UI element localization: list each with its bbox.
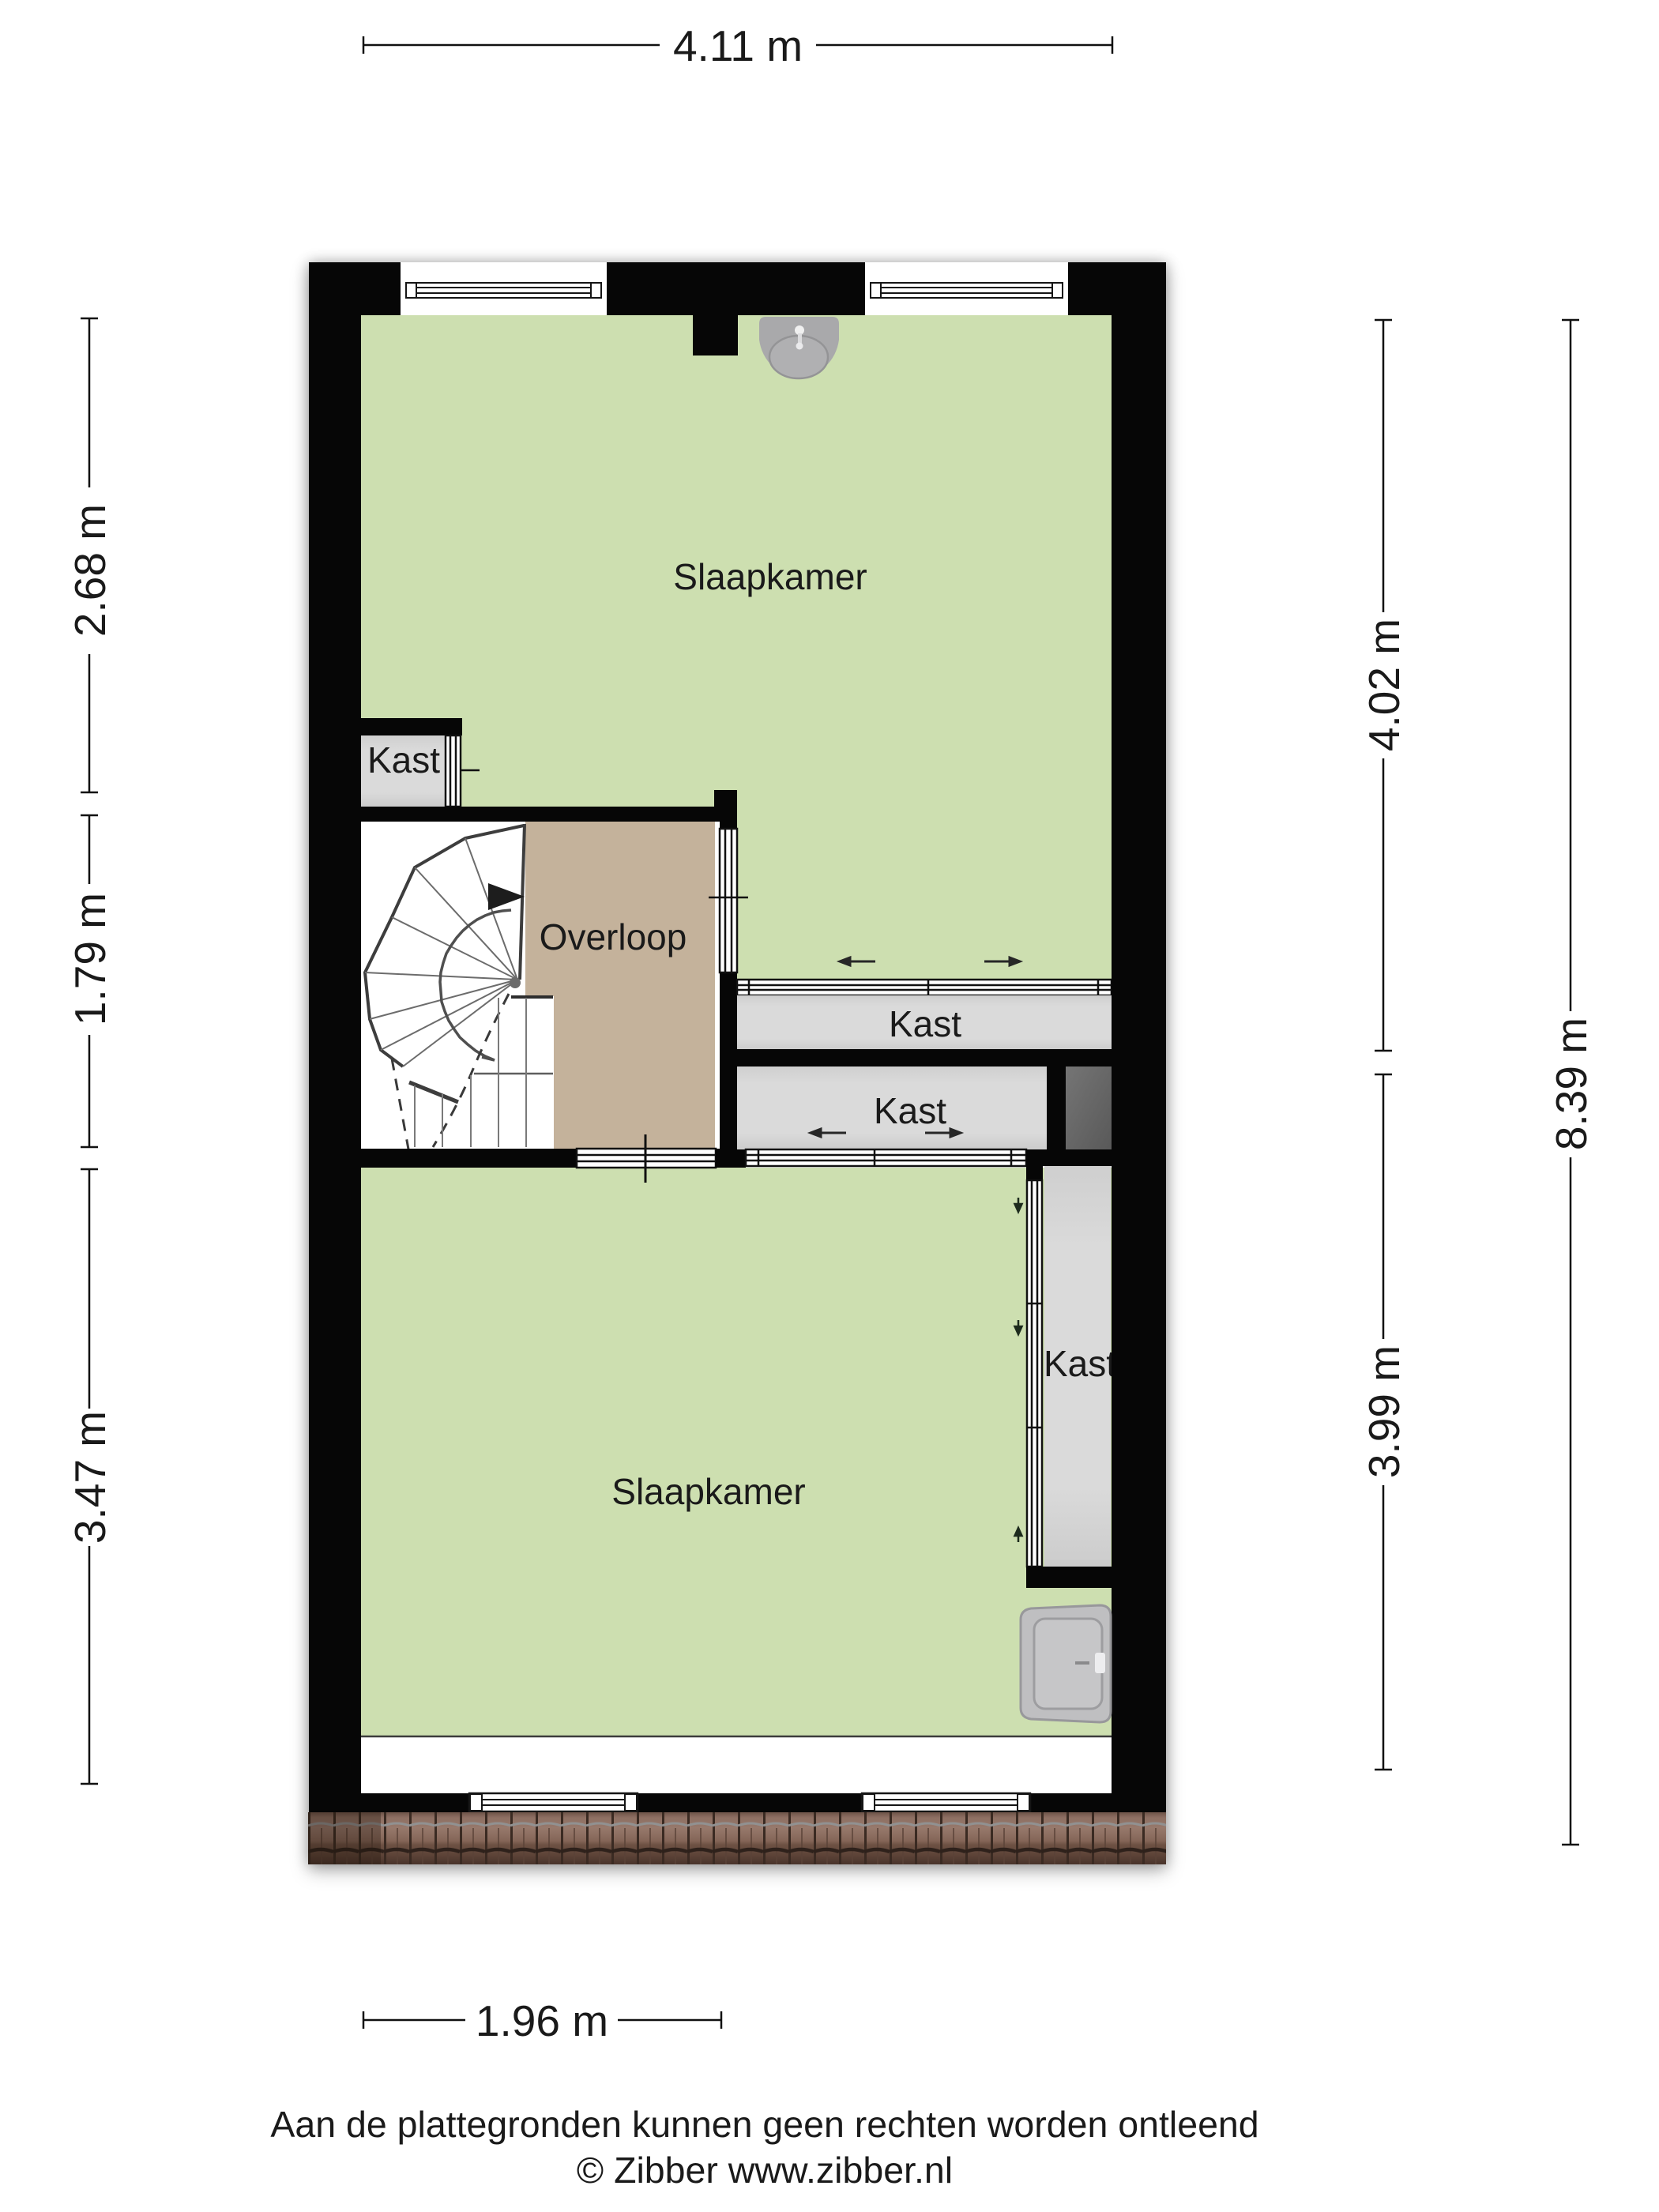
svg-text:Overloop: Overloop <box>540 916 687 957</box>
svg-text:Aan de plattegronden kunnen ge: Aan de plattegronden kunnen geen rechten… <box>270 2104 1258 2145</box>
svg-text:1.79 m: 1.79 m <box>66 893 115 1025</box>
svg-text:8.39 m: 8.39 m <box>1547 1018 1596 1150</box>
svg-text:2.68 m: 2.68 m <box>66 504 115 637</box>
svg-text:3.47 m: 3.47 m <box>66 1411 115 1544</box>
svg-text:Kast: Kast <box>874 1090 946 1131</box>
svg-text:3.99 m: 3.99 m <box>1360 1345 1409 1478</box>
svg-text:1.96 m: 1.96 m <box>476 1996 608 2045</box>
svg-text:4.11 m: 4.11 m <box>673 21 803 70</box>
svg-text:Kast: Kast <box>1044 1343 1116 1384</box>
svg-text:4.02 m: 4.02 m <box>1360 619 1409 751</box>
svg-text:Slaapkamer: Slaapkamer <box>611 1471 805 1512</box>
svg-text:Kast: Kast <box>889 1003 961 1044</box>
svg-text:Kast: Kast <box>367 739 440 781</box>
svg-text:Slaapkamer: Slaapkamer <box>673 556 867 597</box>
svg-text:© Zibber www.zibber.nl: © Zibber www.zibber.nl <box>577 2150 953 2191</box>
